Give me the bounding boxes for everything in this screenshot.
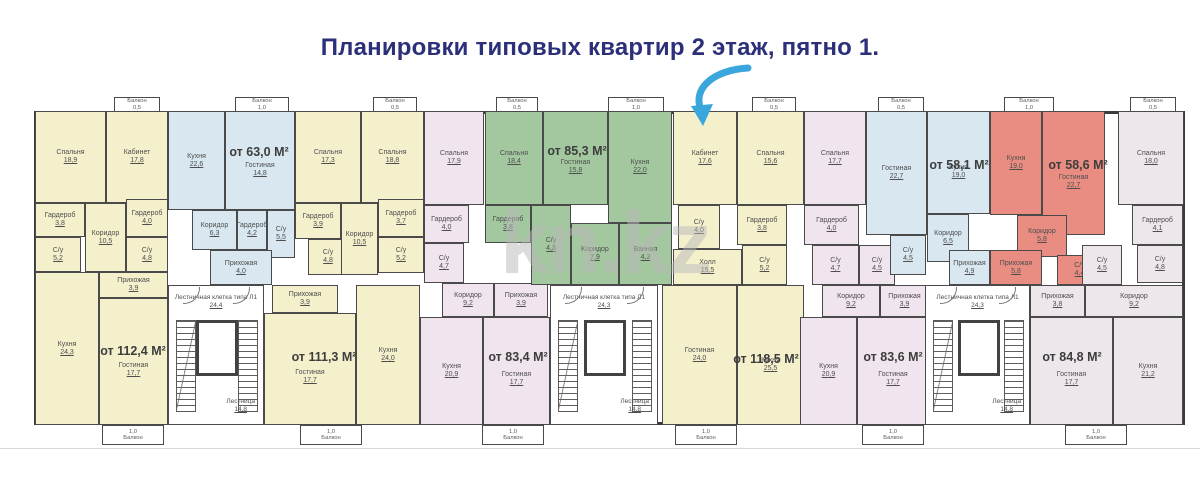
room: Гостиная17,7 (264, 313, 356, 425)
room: Коридор10,5 (85, 203, 126, 272)
room: Кухня22,6 (168, 111, 225, 210)
room: Холл15,5 (673, 249, 742, 285)
room: Гардероб4,1 (1132, 205, 1183, 245)
room: Кухня22,0 (608, 111, 672, 223)
room: Коридор9,2 (1085, 285, 1183, 317)
room: Прихожая3,9 (272, 285, 338, 313)
room: Ванная4,3 (619, 223, 672, 285)
room: Спальня17,9 (424, 111, 484, 205)
divider-line (0, 448, 1200, 449)
room: Спальня18,4 (485, 111, 543, 205)
room: Кабинет17,8 (106, 111, 168, 203)
room: С/у4,8 (126, 237, 168, 272)
balcony: Балкон0,5 (878, 97, 924, 112)
balcony: 1,0Балкон (102, 425, 164, 445)
balcony: 1,0Балкон (675, 425, 737, 445)
balcony: 1,0Балкон (482, 425, 544, 445)
room: Спальня18,9 (35, 111, 106, 203)
stair-core (196, 320, 238, 376)
room: Коридор10,5 (341, 203, 378, 275)
apartment-area-label: от 112,4 М² (100, 344, 166, 358)
room: Гостиная14,8 (225, 111, 295, 210)
balcony: Балкон1,0 (1004, 97, 1054, 112)
room: Кухня20,9 (420, 317, 483, 425)
room: Прихожая5,8 (990, 250, 1042, 285)
stair-diagonal (933, 320, 953, 412)
room: Прихожая4,0 (210, 250, 272, 285)
room: С/у4,7 (812, 245, 859, 285)
room: Коридор9,2 (822, 285, 880, 317)
apartment-area-label: от 58,6 М² (1048, 158, 1107, 172)
apartment-area-label: от 63,0 М² (229, 145, 288, 159)
room: С/у4,8 (1137, 245, 1183, 283)
room: С/у4,5 (1082, 245, 1122, 285)
room: Прихожая3,8 (1030, 285, 1085, 317)
room: Спальня18,0 (1118, 111, 1184, 205)
room: С/у5,2 (35, 237, 81, 272)
room: Гардероб4,2 (237, 210, 267, 250)
room: Гостиная17,7 (1030, 317, 1113, 425)
apartment-area-label: от 58,1 М² (929, 158, 988, 172)
apartment-area-label: от 118,5 М² (733, 352, 799, 366)
room: Кухня24,0 (356, 285, 420, 425)
room: Гардероб4,0 (126, 199, 168, 237)
stair-core (584, 320, 626, 376)
room: Спальня17,7 (804, 111, 866, 205)
room: С/у5,2 (378, 237, 424, 273)
room: Прихожая3,9 (494, 283, 548, 317)
arrow-annotation-icon (668, 62, 756, 136)
room: Прихожая3,9 (99, 272, 168, 298)
balcony: Балкон0,5 (114, 97, 160, 112)
room: Кухня21,2 (1113, 317, 1183, 425)
balcony: Балкон0,5 (496, 97, 538, 112)
balcony: Балкон0,5 (1130, 97, 1176, 112)
room: Гардероб4,0 (424, 205, 469, 243)
room: Гардероб3,8 (35, 203, 85, 237)
room: С/у4,7 (424, 243, 464, 283)
apartment-area-label: от 84,8 М² (1042, 350, 1101, 364)
stair-core (958, 320, 1000, 376)
balcony: 1,0Балкон (1065, 425, 1127, 445)
room: С/у4,0 (678, 205, 720, 249)
balcony: 1,0Балкон (862, 425, 924, 445)
apartment-area-label: от 83,6 М² (863, 350, 922, 364)
room: Гостиная24,0 (662, 285, 737, 425)
balcony: Балкон1,0 (235, 97, 289, 112)
stair-diagonal (558, 320, 578, 412)
room: Гостиная17,7 (99, 298, 168, 425)
room: Кухня24,3 (35, 272, 99, 425)
room: Гостиная15,8 (543, 111, 608, 205)
stairwell: Лестничная клетка типа Л124,3Лестница14,… (550, 285, 658, 425)
room: Гардероб4,0 (804, 205, 859, 245)
room: Кухня20,9 (800, 317, 857, 425)
room: Спальня18,8 (361, 111, 424, 203)
balcony: 1,0Балкон (300, 425, 362, 445)
room: С/у4,3 (531, 205, 571, 285)
room: С/у4,5 (890, 235, 926, 275)
room: Прихожая4,9 (949, 250, 990, 285)
room: Гардероб3,7 (378, 199, 424, 237)
room: Гостиная22,7 (866, 111, 927, 235)
room: С/у5,2 (742, 245, 787, 285)
room: Спальня17,3 (295, 111, 361, 203)
stairwell: Лестничная клетка типа Л124,4Лестница14,… (168, 285, 264, 425)
balcony: Балкон0,5 (373, 97, 417, 112)
stairwell: Лестничная клетка типа Л124,3Лестница14,… (925, 285, 1030, 425)
stair-diagonal (176, 320, 196, 412)
room: Гардероб3,8 (737, 205, 787, 245)
room: Гардероб3,8 (485, 205, 531, 243)
balcony: Балкон1,0 (608, 97, 664, 112)
apartment-area-label: от 83,4 М² (488, 350, 547, 364)
page-title: Планировки типовых квартир 2 этаж, пятно… (0, 34, 1200, 62)
room: Прихожая3,9 (880, 285, 929, 317)
room: Коридор9,2 (442, 283, 494, 317)
apartment-area-label: от 111,3 М² (292, 350, 357, 364)
balcony: Балкон0,5 (752, 97, 796, 112)
room: Гостиная17,7 (857, 317, 929, 425)
room: Кухня19,0 (990, 111, 1042, 215)
room: Коридор7,9 (571, 223, 619, 285)
room: Коридор6,3 (192, 210, 237, 250)
floor-plan: Спальня18,9Кабинет17,8Гардероб3,8Гардеро… (32, 95, 1188, 449)
room: Гардероб3,9 (295, 203, 341, 239)
apartment-area-label: от 85,3 М² (547, 144, 606, 158)
room: Гостиная17,7 (483, 317, 550, 425)
